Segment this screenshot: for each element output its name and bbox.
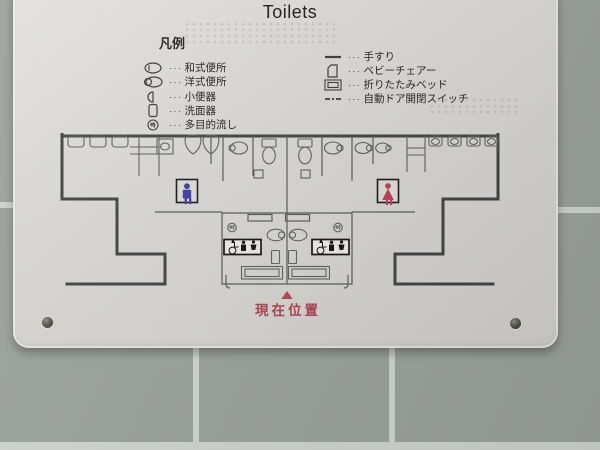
partition-frame-mens bbox=[130, 136, 173, 176]
baby-chair-icon bbox=[322, 64, 346, 78]
accessible-sign-right bbox=[312, 240, 349, 255]
photo-of-toilet-map-sign: Toilets 凡例 ··· 和式便所 ··· 洋式便所 ··· 小便器 ···… bbox=[0, 0, 600, 450]
tile-grout-line bbox=[556, 207, 600, 213]
legend-item-urinal: ··· 小便器 bbox=[143, 89, 216, 104]
current-location-marker bbox=[281, 291, 292, 299]
squat-toilet-icon bbox=[143, 61, 167, 75]
screw bbox=[42, 317, 53, 328]
legend-item-folding-bed: ··· 折りたたみベッド bbox=[322, 77, 448, 92]
washbasin-icon bbox=[143, 103, 167, 118]
legend-item-auto-door-switch: ··· 自動ドア開閉スイッチ bbox=[322, 91, 469, 106]
auto-door-switch-icon bbox=[322, 92, 346, 106]
baby-chair bbox=[289, 251, 297, 264]
interior-walls bbox=[155, 136, 415, 288]
tile-grout-line bbox=[0, 202, 14, 208]
tile-grout-line bbox=[389, 345, 395, 450]
legend-item-squat-toilet: ··· 和式便所 bbox=[143, 60, 227, 75]
partition-frame-womens bbox=[407, 136, 425, 172]
sign-title: Toilets bbox=[200, 2, 380, 23]
tile-grout-line bbox=[193, 345, 199, 450]
urinal-row bbox=[68, 136, 128, 147]
baby-chair bbox=[272, 251, 280, 264]
braille-dots bbox=[185, 22, 335, 44]
legend-item-baby-chair: ··· ベビーチェアー bbox=[322, 63, 436, 78]
western-toilet-icon bbox=[143, 75, 167, 89]
fixtures bbox=[68, 135, 498, 178]
accessible-sign-left bbox=[224, 240, 261, 255]
legend-heading: 凡例 bbox=[159, 33, 185, 52]
handrail-icon bbox=[322, 50, 346, 64]
men-symbol-icon bbox=[177, 180, 198, 205]
folding-bed bbox=[242, 267, 283, 280]
current-location-label: 現在位置 bbox=[228, 299, 348, 319]
screw bbox=[510, 318, 521, 329]
tile-grout-line bbox=[0, 442, 600, 450]
floor-plan bbox=[55, 126, 505, 322]
urinal-icon bbox=[143, 90, 167, 104]
women-symbol-icon bbox=[378, 180, 399, 206]
legend-item-washbasin: ··· 洗面器 bbox=[143, 103, 216, 118]
folding-bed-icon bbox=[322, 78, 346, 92]
legend-item-handrail: ··· 手すり bbox=[322, 49, 395, 64]
wall-urinals bbox=[185, 135, 219, 154]
legend-item-western-toilet: ··· 洋式便所 bbox=[143, 74, 227, 89]
folding-bed bbox=[289, 267, 330, 280]
